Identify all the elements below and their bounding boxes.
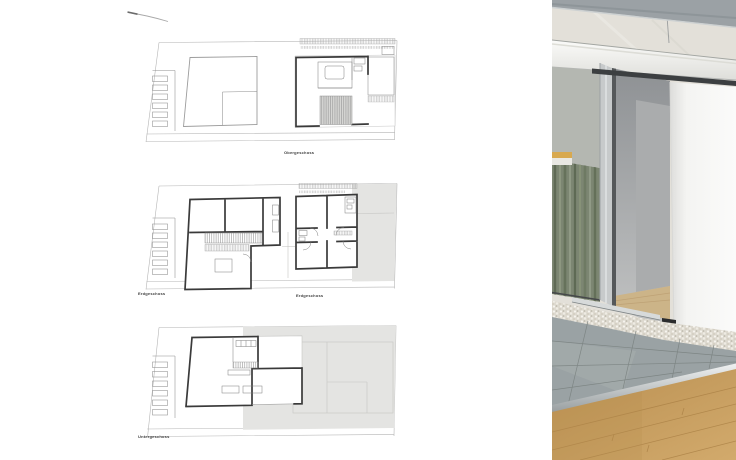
parking-stalls-top xyxy=(153,71,176,132)
parking-stalls-bottom xyxy=(153,356,176,418)
floor-plan-bottom xyxy=(147,326,397,438)
logo-mark xyxy=(128,12,169,22)
plan-label-middle-left: Erdgeschoss xyxy=(138,291,165,296)
plan-label-top: Obergeschoss xyxy=(284,150,314,155)
shaded-area-middle xyxy=(352,184,397,282)
plan-label-bottom: Untergeschoss xyxy=(138,434,170,439)
wood-ledge-reflection xyxy=(552,152,572,158)
site-plan-top xyxy=(146,39,397,143)
sliding-door-panel xyxy=(670,82,736,345)
stair-hatch xyxy=(320,96,352,125)
floor-plan-middle xyxy=(146,184,397,290)
building-left-roof xyxy=(184,57,258,127)
stair-hatch xyxy=(233,362,258,368)
building-left-plan xyxy=(185,198,295,290)
page: Obergeschoss Erdgeschoss Erdgeschoss Unt… xyxy=(0,0,736,460)
stair-hatch xyxy=(205,233,262,243)
building-right-upper-floor xyxy=(295,39,395,128)
door-frame xyxy=(600,63,616,306)
interior-opening xyxy=(612,68,670,331)
building-left-lower-plan xyxy=(186,336,302,407)
glass-pane-bamboo xyxy=(552,67,600,310)
photo-courtyard xyxy=(552,0,736,460)
building-right-plan xyxy=(296,184,357,270)
parking-stalls-middle xyxy=(153,218,176,278)
plan-label-middle-right: Erdgeschoss xyxy=(296,293,323,298)
floor-plans-drawing xyxy=(0,0,552,460)
